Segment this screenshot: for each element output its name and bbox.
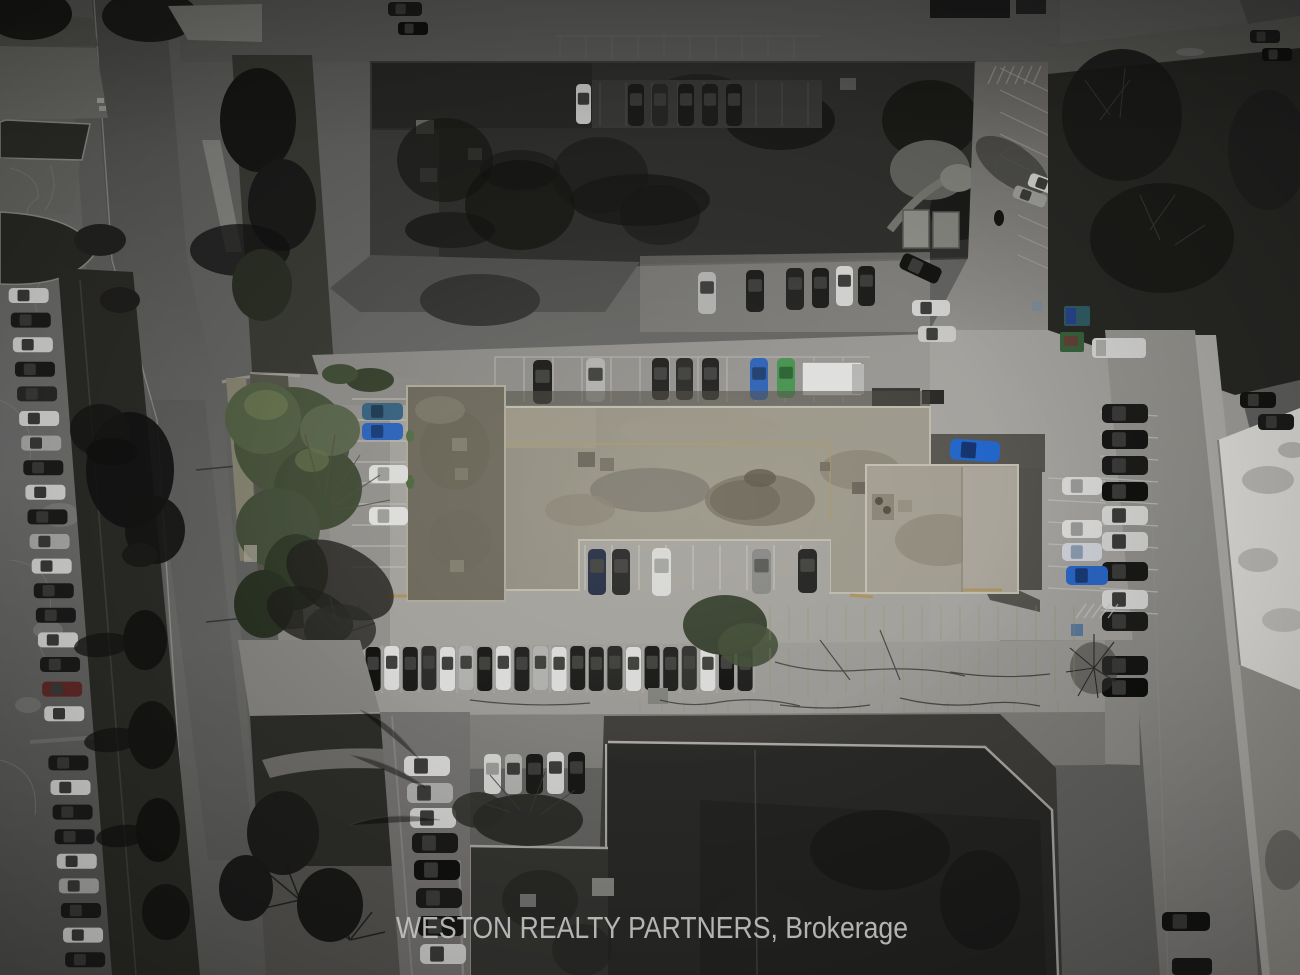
svg-text:WESTON REALTY PARTNERS, Broker: WESTON REALTY PARTNERS, Brokerage bbox=[396, 910, 908, 945]
